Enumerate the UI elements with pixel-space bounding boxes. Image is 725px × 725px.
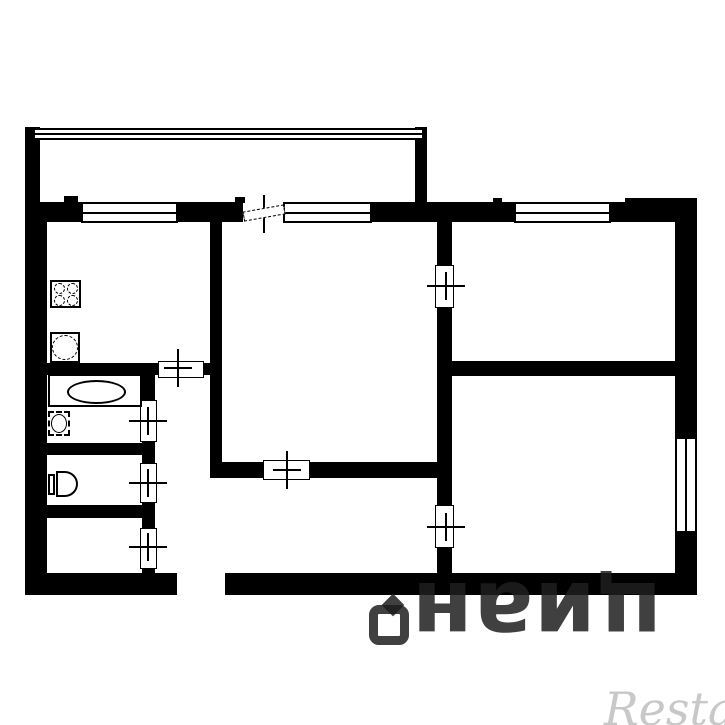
top-wall-mid-b: [372, 202, 514, 222]
bath-toilet-divider: [40, 443, 155, 455]
livingroom-bottom-wall-a: [210, 462, 265, 478]
wc-column-wall-a: [142, 375, 155, 401]
bedroom2-window: [675, 437, 697, 533]
kitchen-bottom-wall-b: [202, 363, 222, 375]
washbasin-icon: [48, 411, 70, 436]
stove-icon: [50, 280, 81, 308]
livingroom-left-wall: [210, 222, 222, 478]
toilet-icon: [48, 471, 79, 498]
balcony-railing: [35, 128, 422, 140]
bathtub-icon: [48, 374, 142, 407]
wc-column-wall-d: [142, 568, 155, 578]
bedrooms-left-wall-b: [437, 307, 452, 506]
wall-notch-d: [625, 198, 697, 203]
left-outer-wall: [25, 202, 47, 595]
livingroom-bottom-wall-b: [308, 462, 452, 478]
wall-notch-c: [493, 198, 502, 203]
kitchen-window: [81, 202, 178, 223]
bedroom1-window: [514, 202, 611, 223]
floor-plan: циан Restate: [0, 0, 725, 725]
restate-watermark: Restate: [604, 682, 725, 725]
bedrooms-divider-wall: [445, 361, 697, 376]
toilet-closet-divider: [40, 505, 155, 518]
top-wall-mid-a: [178, 202, 243, 222]
kitchen-door: [158, 361, 204, 378]
wall-notch-b: [235, 197, 245, 203]
livingroom-window: [283, 202, 372, 223]
wall-notch-a: [64, 196, 78, 203]
cian-watermark-text: циан: [411, 581, 662, 645]
bedrooms-left-wall-a: [437, 222, 452, 266]
right-outer-wall-upper: [675, 202, 697, 437]
cian-watermark: циан: [412, 540, 662, 645]
kitchen-sink-icon: [50, 332, 80, 363]
